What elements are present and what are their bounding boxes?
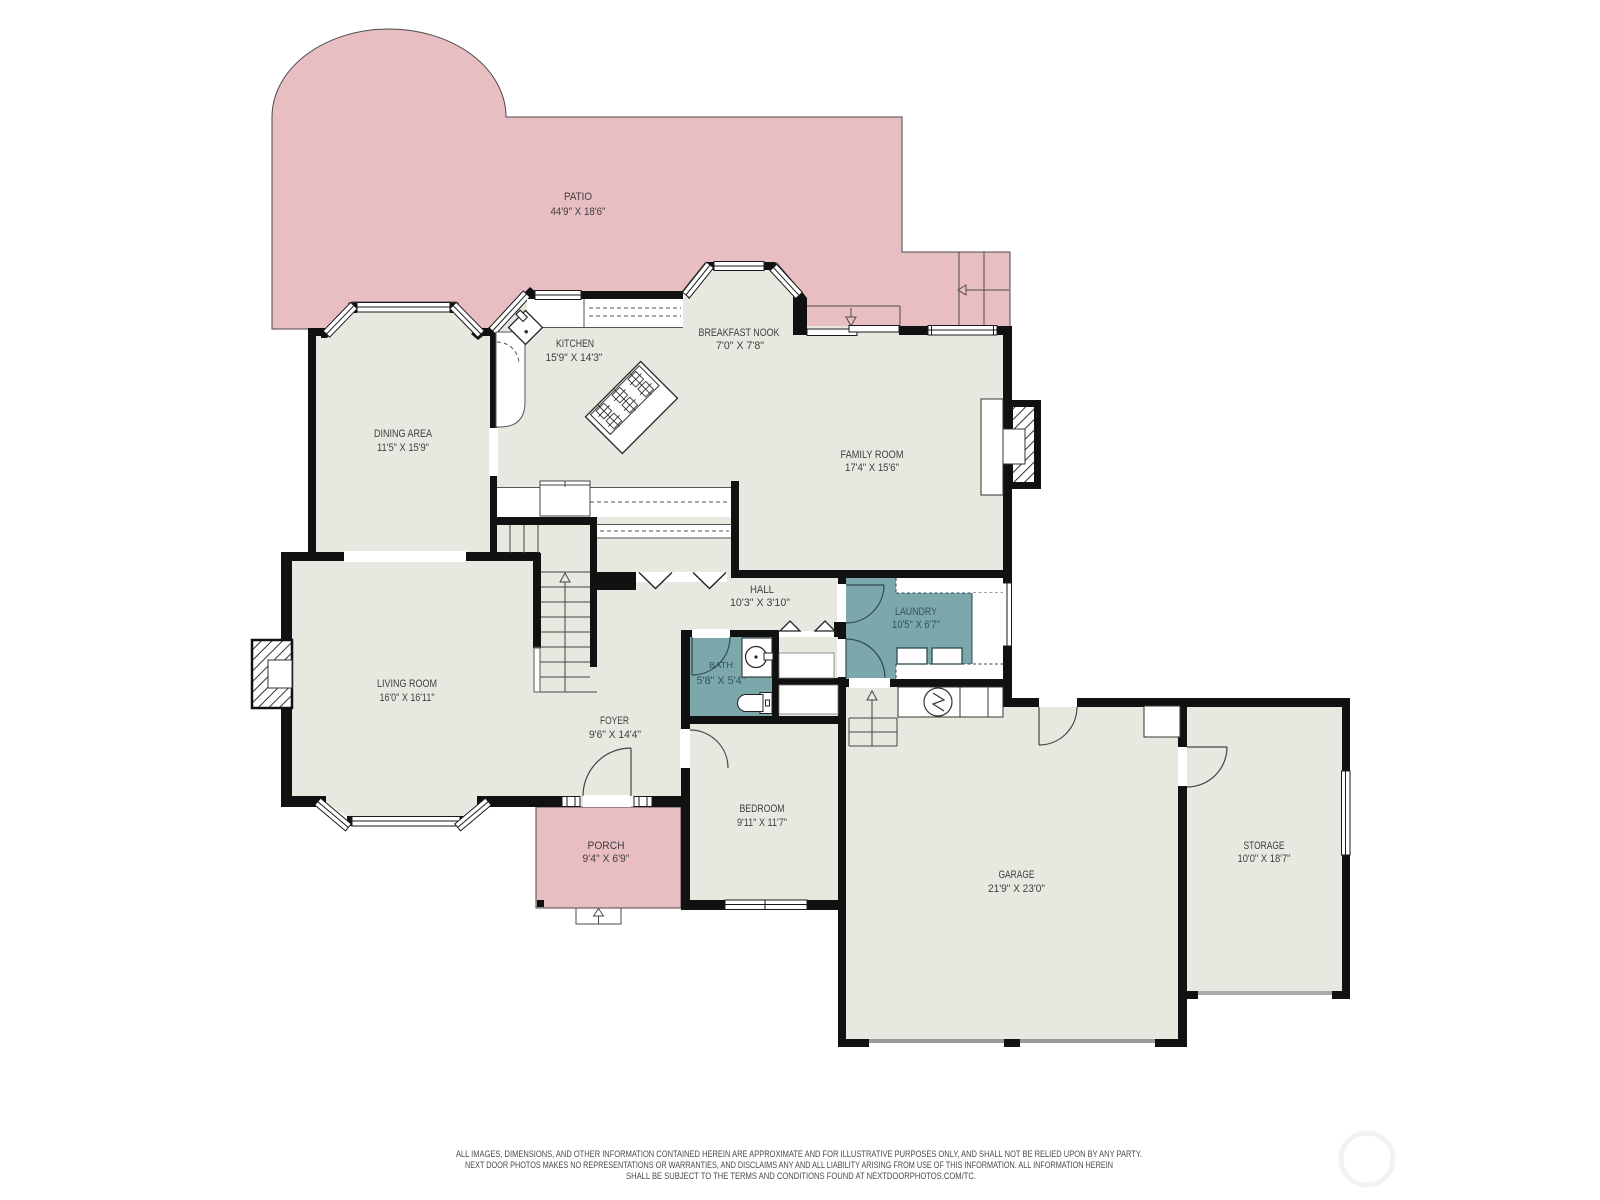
svg-text:9'6" X 14'4": 9'6" X 14'4" — [589, 729, 641, 741]
svg-text:44'9" X 18'6": 44'9" X 18'6" — [551, 206, 606, 218]
svg-text:ALL IMAGES, DIMENSIONS, AND OT: ALL IMAGES, DIMENSIONS, AND OTHER INFORM… — [456, 1149, 1142, 1159]
svg-text:PATIO: PATIO — [564, 191, 592, 203]
svg-text:KITCHEN: KITCHEN — [556, 338, 594, 350]
svg-text:HALL: HALL — [750, 584, 774, 596]
svg-text:FAMILY ROOM: FAMILY ROOM — [841, 449, 904, 461]
svg-text:DINING AREA: DINING AREA — [374, 428, 433, 440]
svg-text:BEDROOM: BEDROOM — [740, 803, 785, 815]
svg-text:9'4" X 6'9": 9'4" X 6'9" — [583, 853, 630, 865]
svg-text:5'8" X 5'4": 5'8" X 5'4" — [697, 675, 746, 687]
svg-text:NEXT DOOR PHOTOS MAKES NO REPR: NEXT DOOR PHOTOS MAKES NO REPRESENTATION… — [465, 1160, 1113, 1170]
svg-text:GARAGE: GARAGE — [999, 869, 1035, 881]
svg-text:LAUNDRY: LAUNDRY — [895, 606, 938, 618]
svg-text:SHALL BE SUBJECT TO THE TERMS: SHALL BE SUBJECT TO THE TERMS AND CONDIT… — [626, 1171, 976, 1181]
svg-text:7'0" X 7'8": 7'0" X 7'8" — [716, 340, 764, 352]
svg-text:15'9" X 14'3": 15'9" X 14'3" — [546, 352, 603, 364]
svg-text:BREAKFAST NOOK: BREAKFAST NOOK — [699, 327, 781, 339]
svg-text:9'11" X 11'7": 9'11" X 11'7" — [737, 817, 787, 829]
svg-text:17'4" X 15'6": 17'4" X 15'6" — [845, 462, 899, 474]
svg-text:10'0" X 18'7": 10'0" X 18'7" — [1238, 853, 1291, 865]
svg-text:STORAGE: STORAGE — [1244, 840, 1285, 852]
svg-text:LIVING ROOM: LIVING ROOM — [377, 678, 437, 690]
svg-text:PORCH: PORCH — [588, 840, 625, 852]
svg-text:11'5" X 15'9": 11'5" X 15'9" — [377, 442, 429, 454]
svg-text:21'9" X 23'0": 21'9" X 23'0" — [988, 883, 1045, 895]
svg-text:10'3" X 3'10": 10'3" X 3'10" — [730, 597, 790, 609]
svg-text:16'0" X 16'11": 16'0" X 16'11" — [380, 692, 435, 704]
svg-text:10'5" X 6'7": 10'5" X 6'7" — [892, 619, 940, 631]
svg-text:FOYER: FOYER — [600, 715, 629, 727]
svg-text:BATH: BATH — [709, 660, 733, 670]
